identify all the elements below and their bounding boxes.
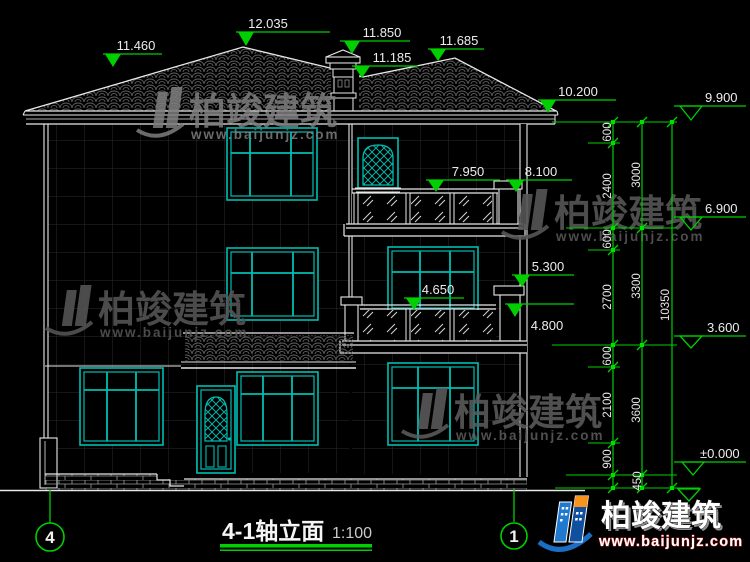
title-underline-thin [220,550,372,552]
glass-panel [411,310,449,341]
watermark-url: www.baijunjz.com [99,325,249,340]
flag-label: 10.200 [558,84,598,99]
drawing-title: 4-1轴立面 [222,518,324,544]
window-gf-left [80,368,163,445]
brand-logo: 柏竣建筑 柏竣建筑 www.baijunjz.com [539,496,743,550]
flag-label: 11.685 [440,33,479,48]
glass-panel [359,194,405,224]
glass-panel [361,310,405,341]
flag-0000: ±0.000 [674,446,746,475]
dim-value: 3300 [631,273,643,299]
dim-value: 450 [632,471,644,490]
drawing-scale: 1:100 [332,525,372,542]
flag-9900: 9.900 [674,90,746,120]
left-wall [44,124,48,473]
flag-label: 12.035 [248,16,288,31]
axis-number: 1 [509,527,518,546]
flag-label: 3.600 [707,320,740,335]
glass-panel [455,194,492,224]
glass-panel [411,194,449,224]
elevation-drawing: 柏竣建筑 www.baijunjz.com 柏竣建筑 www.baijunjz.… [0,0,750,562]
flag-label: 9.900 [705,90,738,105]
dim-value: 600 [602,346,614,365]
flag-label: 11.185 [373,50,412,65]
window-gf-middle [237,372,318,445]
flag-label: 5.300 [532,259,565,274]
datum-flags: 9.900 6.900 3.600 ±0.000 [674,90,746,501]
dim-value: 3600 [631,397,643,423]
flag-12035: 12.035 [236,16,330,46]
flag-label: 4.650 [422,282,455,297]
flag-label: 4.800 [531,318,564,333]
watermark-brand: 柏竣建筑 [189,90,337,132]
dim-value: 2700 [602,284,614,310]
watermark-brand: 柏竣建筑 [98,288,246,330]
watermark-url: www.baijunjz.com [455,428,605,443]
title-underline-thick [220,544,372,548]
flag-label: ±0.000 [700,446,740,461]
title-block: 4-1轴立面 1:100 [220,518,372,551]
axis-number: 4 [45,528,55,547]
door-knob [228,437,231,440]
pillar [499,189,518,224]
pillar [500,295,520,341]
flag-10200: 10.200 [538,84,616,113]
dim-value: 600 [602,229,614,248]
brand-logo-text: 柏竣建筑 [601,499,721,533]
brand-logo-icon [539,496,591,549]
window-arch-3f [355,138,401,192]
dim-value: 3000 [631,162,643,188]
flag-label: 8.100 [525,164,558,179]
axis-marker-left: 4 [36,490,64,551]
flag-11460: 11.460 [103,38,162,67]
window-2f-middle [388,247,478,312]
pillar-cap [494,286,524,295]
dim-value: 10350 [660,289,672,321]
dim-value: 2100 [602,392,614,418]
flag-label: 11.850 [363,25,402,40]
axis-marker-right: 1 [501,490,527,549]
entrance-door [197,386,235,473]
watermark-url: www.baijunjz.com [555,229,705,244]
flag-3600: 3.600 [674,320,746,348]
dim-value: 600 [602,122,614,141]
dim-value: 2400 [602,173,614,199]
glass-panel [455,310,493,341]
pillar-cap [341,297,362,305]
watermark-url: www.baijunjz.com [190,127,340,142]
flag-11685: 11.685 [428,33,484,61]
dim-value: 900 [602,449,614,468]
brand-logo-url: www.baijunjz.com [598,534,743,550]
watermark-brand: 柏竣建筑 [454,391,602,433]
flag-label: 11.460 [117,38,156,53]
flag-label: 7.950 [452,164,485,179]
plinth [0,474,585,491]
flag-label: 6.900 [705,201,738,216]
cad-elevation-canvas: 柏竣建筑 www.baijunjz.com 柏竣建筑 www.baijunjz.… [0,0,750,562]
